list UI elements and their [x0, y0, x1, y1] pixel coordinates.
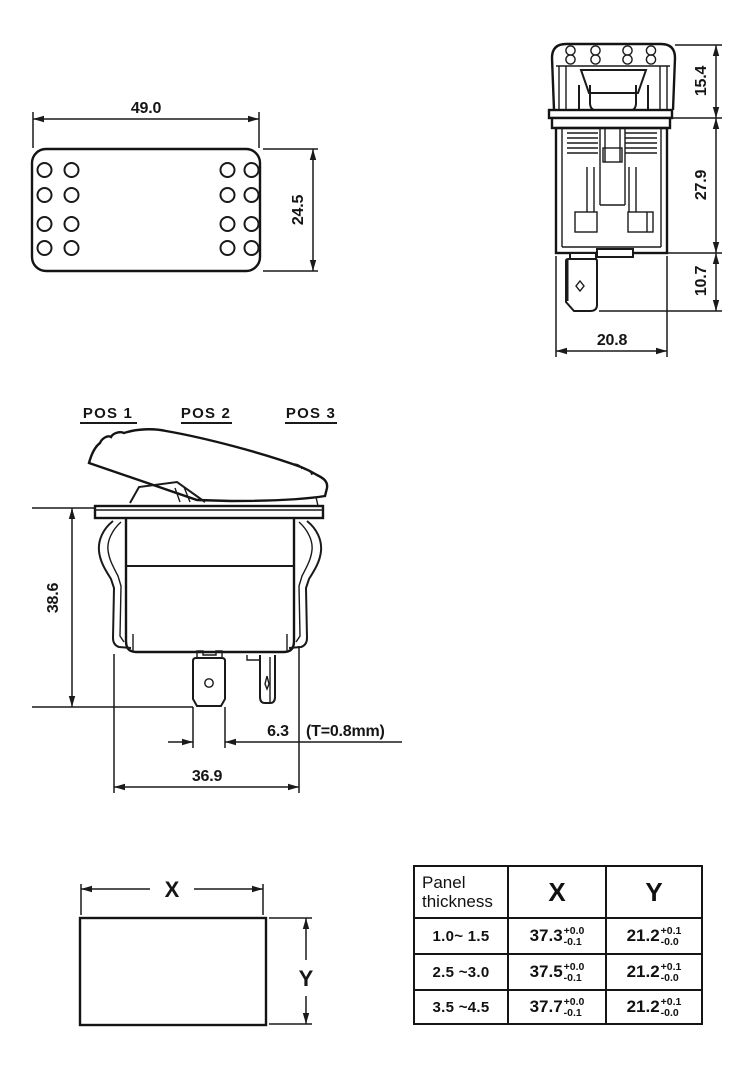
side-body-outline	[556, 128, 667, 253]
pos2-label: POS 2	[181, 405, 231, 422]
value: 21.2	[627, 962, 660, 982]
tolerance-minus: -0.1	[564, 973, 585, 984]
side-height-top-label: 15.4	[693, 66, 710, 97]
front-height-label: 38.6	[45, 583, 62, 614]
pos3-label: POS 3	[286, 405, 336, 422]
table-row1-y: 21.2+0.1-0.0	[607, 919, 701, 955]
table-header-panel-thickness: Panel thickness	[415, 867, 509, 919]
rocker-switch-technical-drawing: 49.0 24.5	[0, 0, 750, 1076]
front-terminal-note: (T=0.8mm)	[306, 723, 385, 740]
table-row3-y: 21.2+0.1-0.0	[607, 991, 701, 1023]
pos1-label: POS 1	[83, 405, 133, 422]
top-view: 49.0 24.5	[32, 100, 318, 271]
table-row3-x: 37.7+0.0-0.1	[509, 991, 607, 1023]
tolerance-minus: -0.1	[564, 937, 585, 948]
side-height-terminal-label: 10.7	[693, 266, 710, 297]
cutout-rectangle	[80, 918, 266, 1025]
tolerance-minus: -0.0	[661, 937, 682, 948]
front-view: POS 1 POS 2 POS 3	[32, 405, 402, 793]
terminal-holes	[38, 163, 259, 255]
side-terminal-blade	[566, 259, 597, 311]
top-view-height-label: 24.5	[290, 195, 307, 226]
front-flange	[95, 506, 323, 518]
value: 37.3	[530, 926, 563, 946]
side-rocker-outline	[552, 44, 675, 110]
table-row3-thickness: 3.5 ~4.5	[415, 991, 509, 1023]
panel-cutout-view: X Y	[80, 877, 314, 1025]
tolerance-minus: -0.1	[564, 1008, 585, 1019]
rocker-actuator	[89, 429, 327, 501]
value: 21.2	[627, 926, 660, 946]
rocker-grip-dots	[566, 46, 656, 64]
table-row2-thickness: 2.5 ~3.0	[415, 955, 509, 991]
value: 37.5	[530, 962, 563, 982]
table-row2-x: 37.5+0.0-0.1	[509, 955, 607, 991]
table-row1-x: 37.3+0.0-0.1	[509, 919, 607, 955]
front-terminal-wide	[193, 658, 225, 706]
side-height-body-label: 27.9	[693, 170, 710, 201]
front-terminal-width-label: 6.3	[267, 723, 289, 740]
table-row2-y: 21.2+0.1-0.0	[607, 955, 701, 991]
top-view-width-label: 49.0	[131, 100, 162, 117]
cutout-x-label: X	[165, 877, 180, 902]
table-header-x: X	[509, 867, 607, 919]
cutout-y-label: Y	[299, 966, 314, 991]
value: 37.7	[530, 997, 563, 1017]
table-row1-thickness: 1.0~ 1.5	[415, 919, 509, 955]
hatch-lines	[567, 133, 657, 153]
front-body-outline	[126, 518, 294, 652]
tolerance-minus: -0.0	[661, 1008, 682, 1019]
side-view: 15.4 27.9 10.7 20.8	[549, 44, 722, 357]
panel-thickness-table: Panel thickness X Y 1.0~ 1.5 37.3+0.0-0.…	[413, 865, 703, 1025]
side-width-label: 20.8	[597, 332, 628, 349]
value: 21.2	[627, 997, 660, 1017]
table-header-y: Y	[607, 867, 701, 919]
tolerance-minus: -0.0	[661, 973, 682, 984]
front-width-label: 36.9	[192, 768, 223, 785]
